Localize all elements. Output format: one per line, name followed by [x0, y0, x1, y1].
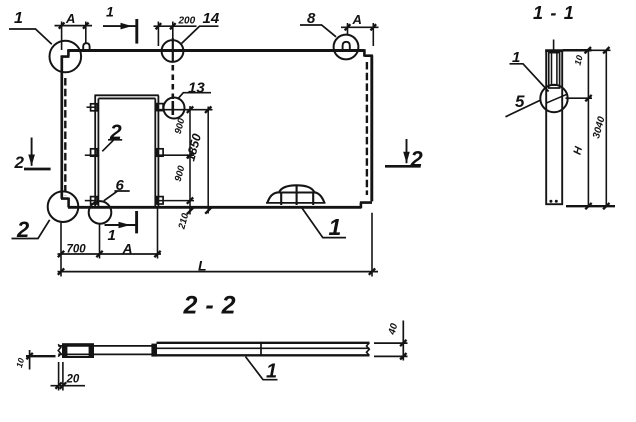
svg-text:A: A: [65, 11, 75, 26]
svg-text:6: 6: [116, 177, 125, 194]
svg-text:1: 1: [266, 361, 277, 383]
svg-text:13: 13: [188, 80, 205, 97]
svg-text:1: 1: [108, 227, 116, 244]
svg-text:20: 20: [66, 374, 80, 386]
svg-text:700: 700: [67, 244, 87, 256]
svg-text:A: A: [122, 241, 133, 257]
svg-text:L: L: [198, 258, 207, 274]
svg-text:1: 1: [512, 49, 520, 66]
svg-text:5: 5: [515, 92, 525, 111]
svg-text:1: 1: [329, 214, 342, 240]
svg-text:2: 2: [109, 121, 122, 144]
svg-text:8: 8: [307, 10, 316, 27]
svg-text:14: 14: [203, 10, 220, 27]
svg-text:1 - 1: 1 - 1: [533, 3, 575, 23]
svg-text:200: 200: [178, 16, 196, 27]
svg-text:A: A: [352, 12, 362, 27]
svg-text:1: 1: [106, 4, 114, 20]
svg-text:2: 2: [410, 147, 424, 172]
svg-text:2: 2: [14, 153, 25, 172]
svg-text:2: 2: [16, 217, 30, 242]
svg-text:2 - 2: 2 - 2: [183, 292, 237, 320]
svg-text:1: 1: [14, 10, 23, 27]
